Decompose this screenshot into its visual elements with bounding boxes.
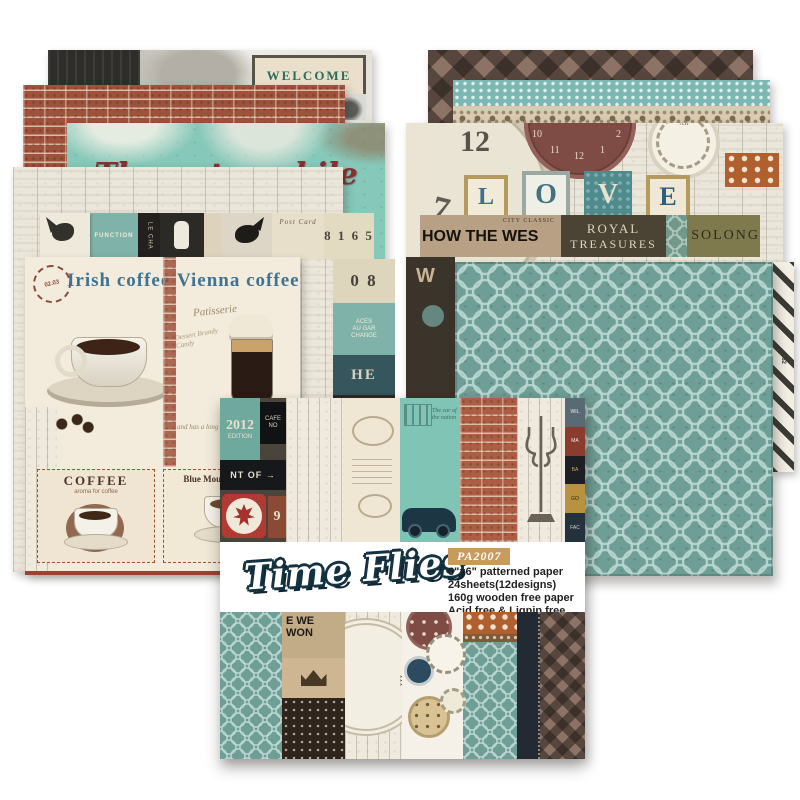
cup-handle-icon (55, 345, 87, 377)
royal-text: ROYAL (587, 221, 640, 237)
number-tags-tile: 8 1 6 5 (324, 213, 374, 259)
sketch-cup-2 (358, 494, 392, 518)
newsprint-left-column: W (406, 257, 455, 398)
bstrip-quatrefoil (220, 612, 282, 759)
love-letter-v: V (598, 179, 618, 211)
coffee-label: COFFEE (38, 473, 154, 489)
paper-pad-pack: 2012 EDITION CAFE NO NT OF → 9 (220, 398, 585, 759)
jug-tile (160, 213, 204, 259)
patisserie-script: Patisserie (192, 303, 237, 320)
newsprint-teal-dot (422, 305, 444, 327)
vienna-glass-body-icon (231, 339, 273, 403)
mini-sign-wil: WIL (565, 398, 585, 427)
ring-clock-numeral: XII (679, 123, 689, 127)
strip-brick (460, 398, 517, 542)
love-block-o: O (522, 171, 570, 219)
sign-2012-text: 2012 (226, 418, 254, 434)
maple-clock-icon (222, 494, 266, 538)
coffee-beans-icon (53, 413, 97, 435)
teal-scallop-band (453, 80, 770, 106)
dessert-script: Dessert Brandy Candy (174, 324, 234, 350)
aces-sign: ACES AU GAR CHANGE (333, 303, 395, 355)
bstrip-news-crown-polka: E WE WON (282, 612, 345, 759)
plain-tile (204, 213, 222, 259)
product-photo-time-flies-paper-pad: WELCOME WELCOME ...OU The automobile age… (0, 0, 800, 800)
sign-ntof: NT OF → (220, 460, 286, 490)
pack-bottom-collage: E WE WON III (220, 612, 585, 759)
strip-wood-planks (286, 398, 344, 542)
band-royal-treasures: ROYAL TREASURES (561, 215, 666, 257)
stamp-text: 02.03 (44, 279, 60, 288)
mini-sign-wil-text: WIL (571, 409, 580, 415)
spec-line-size: 6"x6" patterned paper (448, 566, 574, 579)
solong-lace-square (666, 215, 687, 257)
floral-border-band (463, 612, 517, 634)
big-roman-clock-icon: III (345, 618, 402, 736)
maroon-num-1: 1 (600, 145, 605, 156)
bstrip-clock-faces (402, 612, 463, 759)
clockface-roman-ring (426, 634, 466, 674)
mini-sign-fac-text: FAC (570, 525, 580, 531)
function-sign-text: FUNCTION (95, 233, 134, 240)
coffee-sublabel: aroma for coffee (38, 489, 154, 495)
polka-dot-block (282, 698, 345, 759)
coffee-frame-left: COFFEE aroma for coffee (37, 469, 155, 563)
love-letter-l: L (478, 184, 494, 211)
zero-sign-text: 0 8 (350, 271, 377, 291)
mini-sign-go-text: GO (571, 496, 579, 502)
city-classic-text: CITY CLASSIC (503, 218, 555, 224)
vienna-glass-cream-icon (229, 315, 273, 341)
strip-teal-car: The car of the nation (400, 398, 460, 542)
building-sketch-icon (404, 404, 432, 426)
zero-sign: 0 8 (333, 259, 395, 303)
change-text: CHANGE (351, 333, 377, 340)
mini-sign-fac: FAC (565, 513, 585, 542)
vienna-heading-wrap: Vienna coffee (177, 270, 300, 296)
postcard-text: Post Card (279, 218, 316, 226)
coffee-brick-divider (163, 257, 176, 467)
sign-nine-text: 9 (274, 509, 281, 525)
pack-label-band: Time Flies PA2007 6"x6" patterned paper … (220, 542, 585, 612)
rooster-tile (40, 213, 90, 259)
au-gar-text: AU GAR (352, 326, 375, 333)
strip-coffee-sketch (344, 398, 400, 542)
bstrip-big-clock: III (345, 612, 402, 759)
sketch-lines (352, 454, 392, 484)
coffee-surface-icon (76, 339, 140, 355)
crown-icon (301, 670, 327, 686)
news-headline: E WE WON (282, 612, 345, 658)
love-block-v: V (584, 171, 632, 219)
pack-title: Time Flies (243, 543, 435, 598)
bstrip-teal-floral (463, 612, 517, 759)
small-saucer-left-icon (64, 534, 128, 550)
car-wheel-2 (436, 524, 450, 538)
aces-text: ACES (356, 319, 372, 326)
maple-clock-face (226, 498, 262, 534)
maroon-num-2: 2 (616, 129, 621, 140)
mini-sign-go: GO (565, 484, 585, 513)
vienna-coffee-heading: Vienna coffee (177, 270, 300, 291)
band-how-the-west: CITY CLASSIC HOW THE WES (420, 215, 561, 257)
love-letter-e: E (659, 182, 676, 212)
solong-text: SOLONG (691, 228, 760, 244)
sheet-striped-edge: 382 (770, 262, 794, 472)
pack-top-collage: 2012 EDITION CAFE NO NT OF → 9 (220, 398, 585, 542)
le-cha-sign-tile: LE CHA (138, 213, 160, 259)
floral-lace-line (463, 634, 517, 642)
sign-2012: 2012 EDITION (220, 398, 260, 460)
crown-pillow (282, 658, 345, 698)
postcard-tile: Post Card (272, 213, 324, 259)
maroon-num-11: 11 (550, 145, 560, 156)
pack-code-badge: PA2007 (448, 547, 510, 565)
mini-sign-ma: MA (565, 427, 585, 456)
band-solong: SOLONG (666, 215, 760, 257)
collage-top-row: FUNCTION LE CHA Post Card 8 1 6 5 (40, 213, 395, 259)
treasures-text: TREASURES (570, 237, 657, 252)
love-block-e: E (646, 175, 690, 219)
strip-candelabra (517, 398, 565, 542)
how-the-wes-text: HOW THE WES (422, 228, 538, 246)
sign-cafe-text: CAFE NO (260, 416, 286, 430)
sign-nine: 9 (268, 496, 286, 538)
sign-ntof-text: NT OF → (230, 470, 276, 480)
mini-sign-ma-text: MA (571, 438, 579, 444)
harlequin-strip (540, 612, 585, 759)
bstrip-spine-harlequin (517, 612, 585, 759)
strip-mini-signs: WIL MA BA GO FAC (565, 398, 585, 542)
mini-sign-ba-text: BA (572, 467, 579, 473)
spec-line-weight: 160g wooden free paper (448, 592, 574, 605)
he-sign-text: HE (351, 367, 377, 384)
sign-cafe: CAFE NO (260, 402, 286, 444)
love-blocks-row: L O V E (464, 171, 690, 219)
irish-coffee-heading: Irish coffee (67, 270, 170, 292)
rooster-silhouette-tile (222, 213, 272, 259)
maple-leaf-icon (232, 504, 256, 528)
sketch-cup-1 (352, 416, 394, 446)
jug-icon (174, 221, 189, 249)
maroon-num-10: 10 (532, 129, 542, 140)
car-wheel-1 (408, 524, 422, 538)
rust-floral-patch (725, 153, 779, 187)
maroon-num-12: 12 (574, 151, 584, 162)
big-clock-num-12: 12 (460, 125, 490, 159)
newsprint-w-text: W (416, 265, 435, 288)
pack-code-text: PA2007 (448, 548, 510, 565)
love-letter-o: O (535, 179, 557, 211)
candelabra-icon (521, 410, 561, 530)
bands-row: CITY CLASSIC HOW THE WES ROYAL TREASURES… (420, 215, 760, 257)
number-tags-text: 8 1 6 5 (324, 228, 374, 244)
pack-specs: 6"x6" patterned paper 24sheets(12designs… (448, 566, 574, 618)
ring-clock-ticks (656, 123, 710, 169)
love-block-l: L (464, 175, 508, 219)
sign-edition-text: EDITION (228, 434, 252, 441)
mini-sign-ba: BA (565, 456, 585, 485)
teal-below-floral (463, 642, 517, 759)
spec-line-sheets: 24sheets(12designs) (448, 579, 574, 592)
small-coffee-surface-icon (79, 511, 111, 520)
le-cha-text: LE CHA (146, 222, 153, 250)
stripes-text: 382 (779, 354, 786, 364)
strip-signs: 2012 EDITION CAFE NO NT OF → 9 (220, 398, 286, 542)
clockface-cream-small (440, 688, 466, 714)
news-line-2: WON (286, 627, 341, 639)
welcome-sign-text: WELCOME (267, 68, 352, 84)
he-sign: HE (333, 355, 395, 395)
news-line-1: E WE (286, 615, 341, 627)
car-script-text: The car of the nation (432, 408, 458, 422)
function-sign-tile: FUNCTION (90, 213, 138, 259)
book-spine-strip (517, 612, 540, 759)
